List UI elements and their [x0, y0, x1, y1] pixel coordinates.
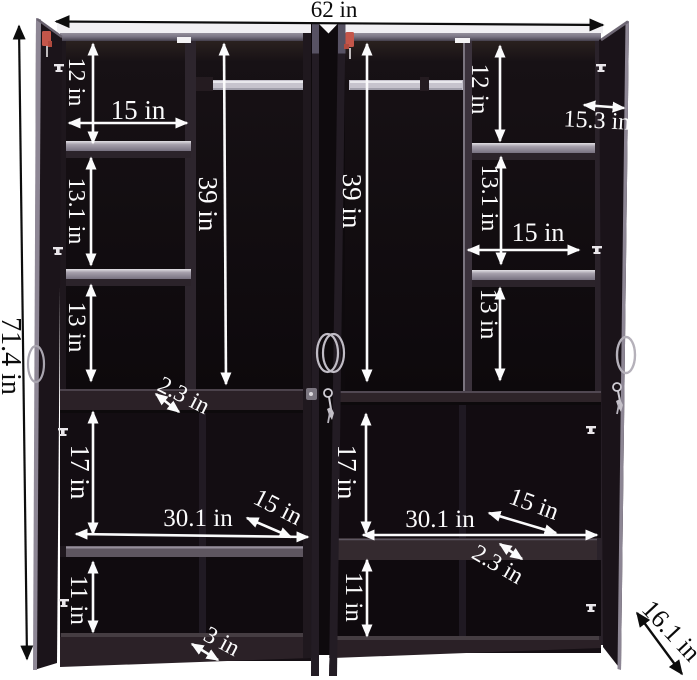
svg-text:15 in: 15 in: [512, 218, 565, 247]
svg-text:17 in: 17 in: [65, 445, 95, 500]
svg-text:30.1 in: 30.1 in: [405, 506, 475, 533]
svg-text:11 in: 11 in: [340, 572, 367, 622]
svg-text:13 in: 13 in: [63, 302, 90, 353]
svg-text:12 in: 12 in: [466, 64, 493, 115]
svg-text:13 in: 13 in: [475, 289, 502, 340]
svg-text:39 in: 39 in: [337, 174, 367, 229]
svg-text:62 in: 62 in: [311, 0, 358, 22]
svg-text:71.4 in: 71.4 in: [0, 317, 26, 395]
svg-text:17 in: 17 in: [332, 445, 362, 500]
svg-text:15.3 in: 15.3 in: [563, 106, 631, 135]
svg-text:13.1 in: 13.1 in: [63, 178, 89, 245]
svg-text:30.1 in: 30.1 in: [163, 505, 233, 532]
svg-text:11 in: 11 in: [65, 575, 92, 625]
svg-text:12 in: 12 in: [63, 58, 89, 107]
svg-text:15 in: 15 in: [111, 95, 166, 125]
svg-text:39 in: 39 in: [193, 177, 223, 232]
svg-text:13.1 in: 13.1 in: [476, 165, 502, 232]
